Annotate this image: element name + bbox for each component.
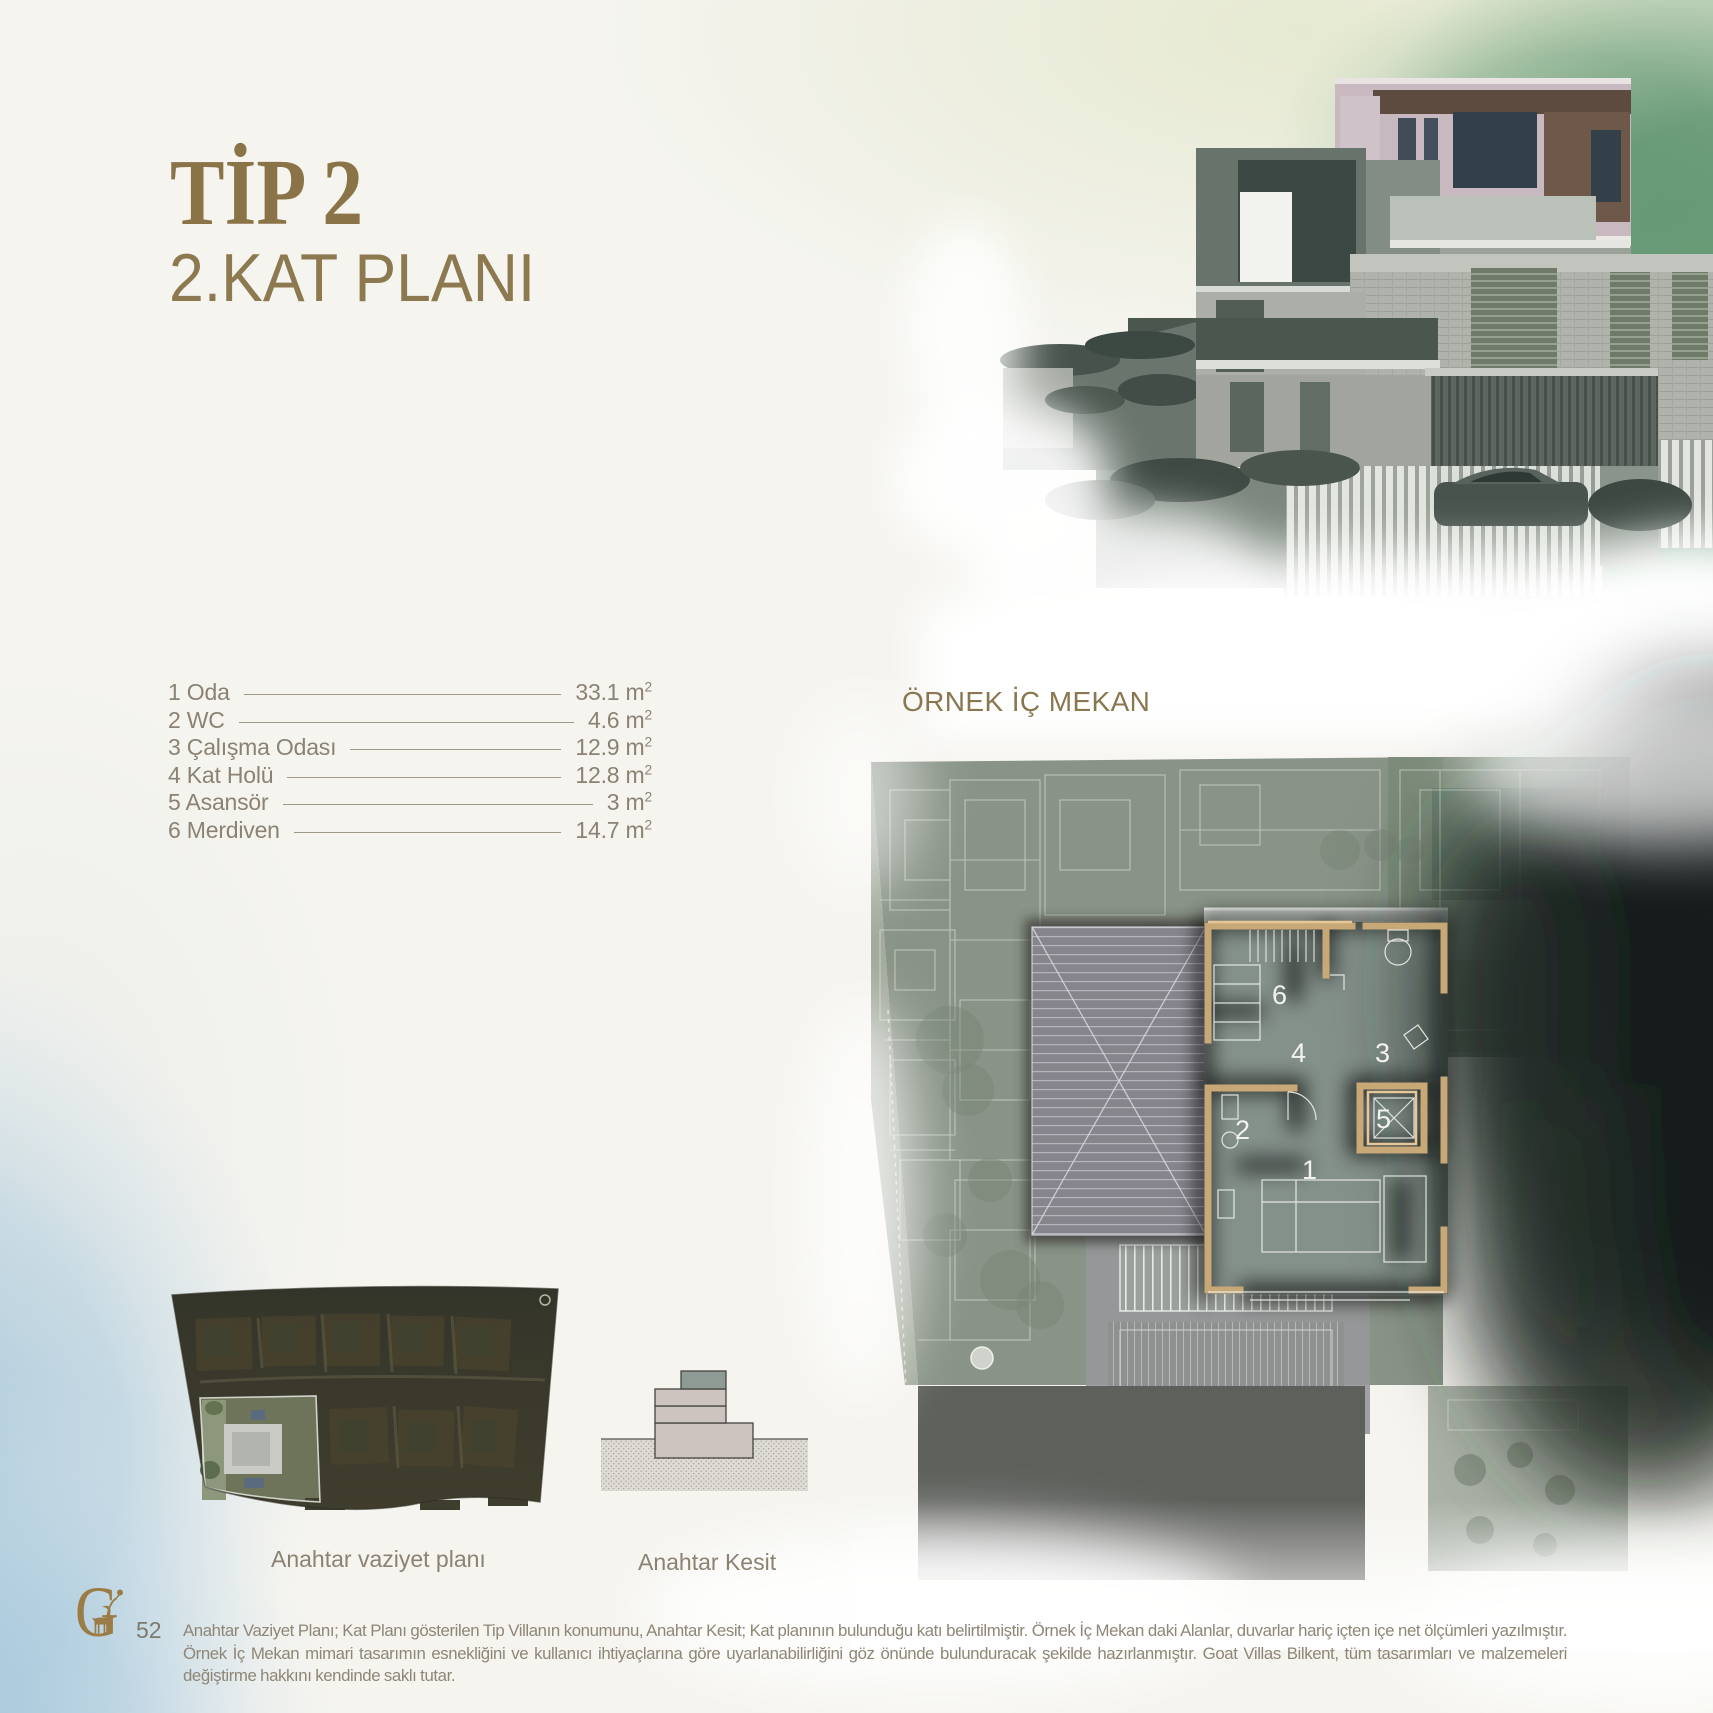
svg-text:1: 1 <box>1302 1155 1317 1185</box>
svg-text:6: 6 <box>1272 980 1287 1010</box>
svg-text:4: 4 <box>1291 1038 1306 1068</box>
svg-text:G: G <box>75 1573 119 1652</box>
svg-text:5: 5 <box>1376 1104 1391 1134</box>
svg-text:3: 3 <box>1375 1038 1390 1068</box>
svg-text:2: 2 <box>1235 1115 1250 1145</box>
